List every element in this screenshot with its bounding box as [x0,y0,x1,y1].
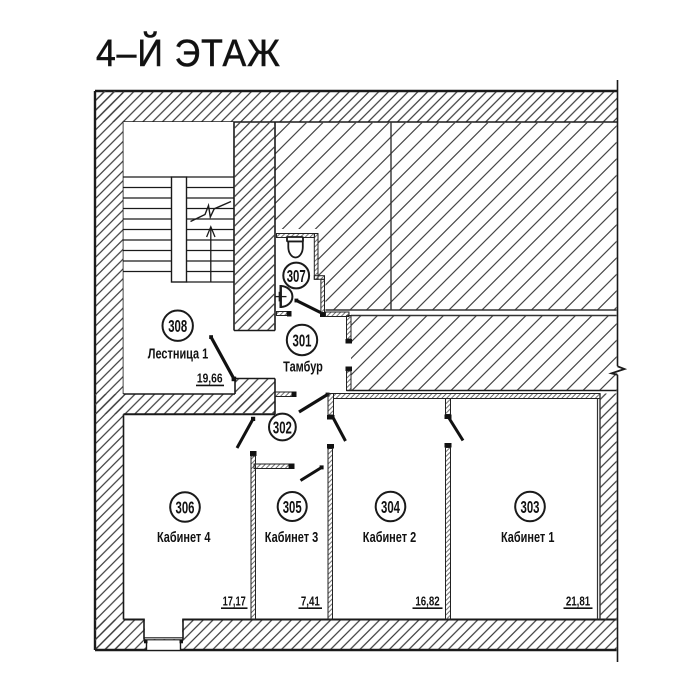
svg-text:17,17: 17,17 [223,595,246,609]
svg-text:308: 308 [168,318,187,337]
svg-text:303: 303 [521,499,540,518]
svg-text:4–Й ЭТАЖ: 4–Й ЭТАЖ [96,31,281,74]
svg-text:305: 305 [283,499,302,518]
svg-text:302: 302 [273,419,292,438]
svg-text:Лестница 1: Лестница 1 [148,345,208,362]
svg-text:21,81: 21,81 [566,595,590,608]
svg-text:Кабинет 3: Кабинет 3 [265,528,318,545]
svg-text:304: 304 [381,499,401,518]
svg-text:Кабинет 1: Кабинет 1 [501,528,554,545]
svg-text:Кабинет 2: Кабинет 2 [363,528,416,545]
svg-text:Кабинет 4: Кабинет 4 [157,528,211,545]
svg-text:307: 307 [287,268,306,287]
svg-text:301: 301 [293,332,312,351]
svg-text:19,66: 19,66 [197,373,223,386]
svg-text:7,41: 7,41 [301,595,320,608]
svg-text:16,82: 16,82 [415,595,439,608]
svg-text:306: 306 [176,499,195,518]
svg-text:Тамбур: Тамбур [283,358,323,375]
